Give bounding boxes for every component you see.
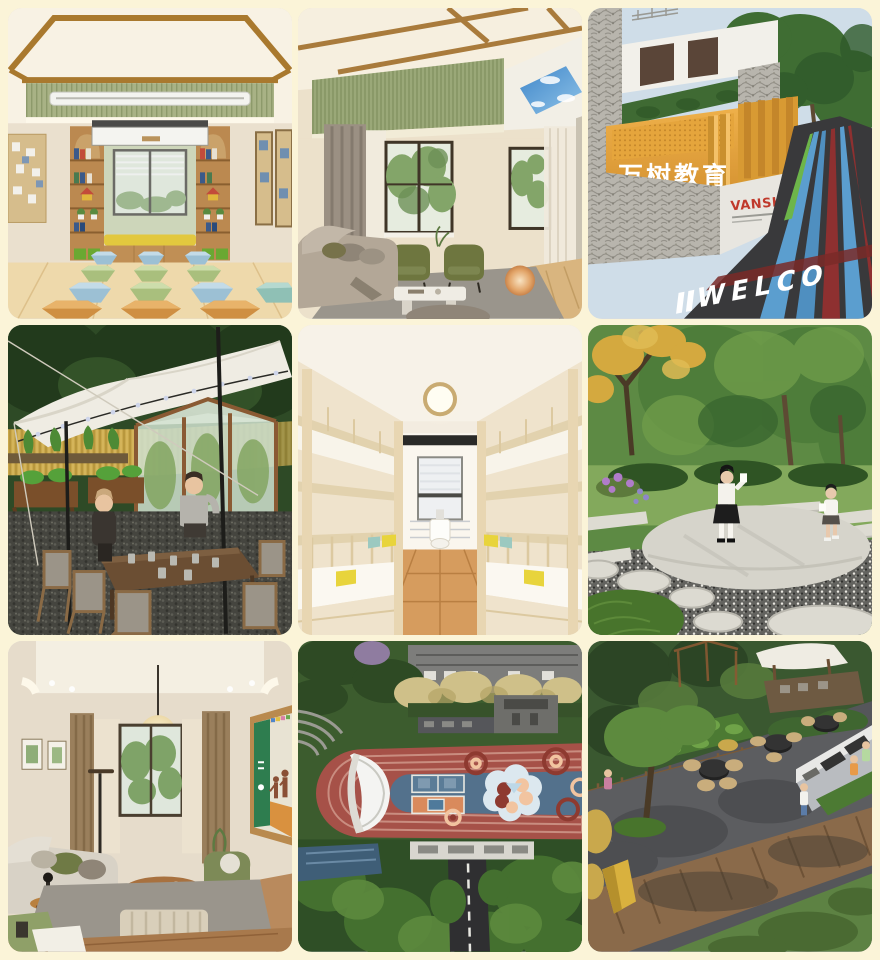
tile-bbq-terrace-aerial[interactable] [588,641,872,952]
tile-living-room-lounge[interactable] [298,8,582,319]
living-room-illustration [298,8,582,319]
tile-campus-entrance[interactable]: 万树教育 VANSHU WELCO [588,8,872,319]
photo-collage: 万树教育 VANSHU WELCO [0,0,880,960]
lounge-illustration [8,641,292,952]
tile-outdoor-tent-dining[interactable] [8,325,292,636]
ceiling-light [425,384,455,414]
tent-dining-illustration [8,325,292,636]
family-poster-screen [250,705,292,845]
garden-illustration [588,325,872,636]
tile-playground-aerial[interactable] [298,641,582,952]
entrance-illustration: 万树教育 VANSHU WELCO [588,8,872,319]
tile-family-lounge[interactable] [8,641,292,952]
classroom-illustration [8,8,292,319]
tile-classroom-reading-room[interactable] [8,8,292,319]
tile-dormitory-bunk-beds[interactable] [298,325,582,636]
glow-orb-lamp [505,266,535,296]
bbq-terrace-illustration [588,641,872,952]
dormitory-illustration [298,325,582,636]
tile-garden-reading-circle[interactable] [588,325,872,636]
playground-illustration [298,641,582,952]
